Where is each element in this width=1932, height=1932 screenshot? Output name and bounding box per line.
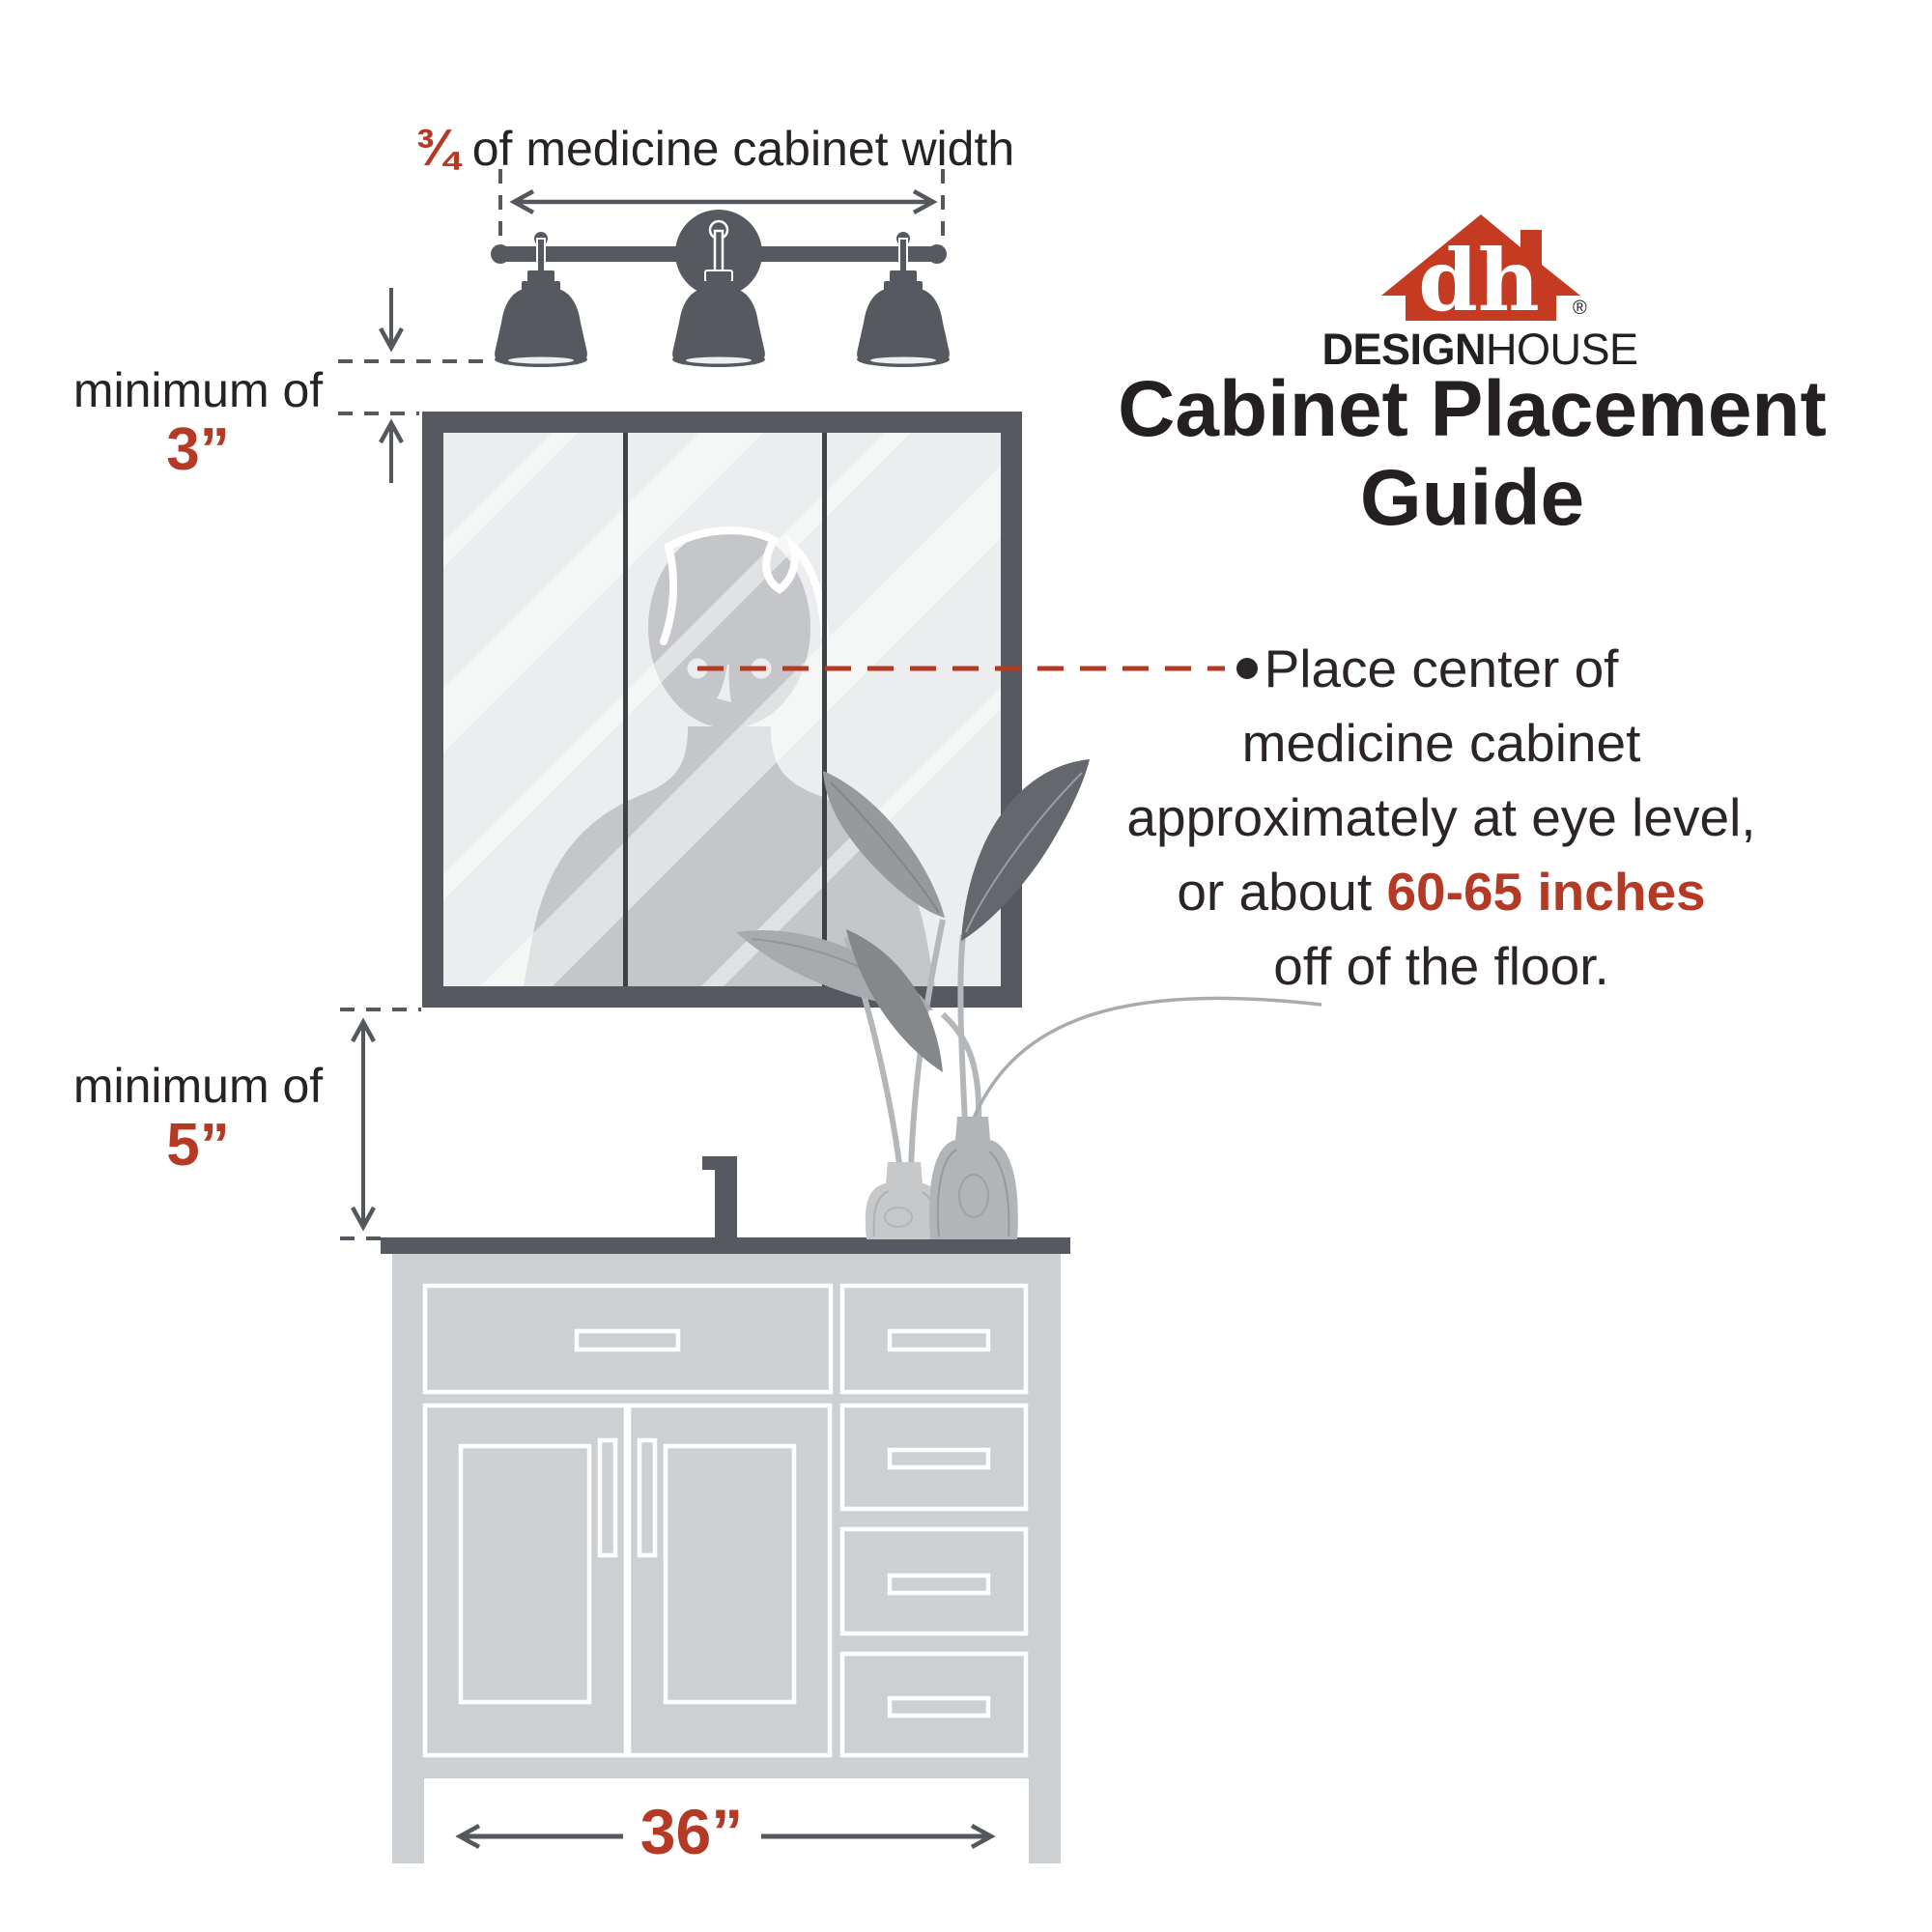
mirror-door-divider-left: [623, 433, 628, 986]
gap3-value: 3”: [48, 423, 348, 477]
vanity-cabinet: [381, 1156, 1070, 1863]
mirror-door-divider-right: [822, 433, 827, 986]
placement-note: Place center of medicine cabinet approxi…: [1113, 632, 1770, 1004]
cabinet-placement-guide: ¾ of medicine cabinet width minimum of 3…: [0, 0, 1932, 1932]
vanity-light-icon: [491, 210, 950, 367]
gap5-dimension: [340, 1009, 421, 1238]
gap3-text: minimum of: [48, 363, 348, 417]
registered-mark: ®: [1573, 298, 1587, 320]
title-line1: Cabinet Placement: [1066, 365, 1878, 454]
note-line3: approximately at eye level,: [1113, 781, 1770, 855]
note-line2: medicine cabinet: [1113, 706, 1770, 781]
note-line4-prefix: or about: [1177, 862, 1386, 922]
title-line2: Guide: [1066, 454, 1878, 543]
note-line5: off of the floor.: [1113, 929, 1770, 1004]
medicine-cabinet: [422, 412, 1022, 1008]
cabinet-width-label: ¾ of medicine cabinet width: [377, 120, 1053, 177]
countertop: [381, 1237, 1070, 1254]
page-title: Cabinet Placement Guide: [1066, 365, 1878, 543]
vases: [866, 1117, 1018, 1239]
faucet: [702, 1156, 737, 1241]
gap5-label: minimum of 5”: [48, 1059, 348, 1173]
note-line4: or about 60-65 inches: [1113, 855, 1770, 929]
note-line1: Place center of: [1113, 632, 1770, 706]
gap5-value: 5”: [48, 1119, 348, 1173]
note-height-range: 60-65 inches: [1386, 862, 1705, 922]
gap3-label: minimum of 3”: [48, 363, 348, 477]
gap5-text: minimum of: [48, 1059, 348, 1113]
width-label-text: of medicine cabinet width: [459, 122, 1014, 176]
vanity-width-value: 36”: [614, 1797, 769, 1866]
vanity-leg-right: [1029, 1778, 1061, 1863]
designhouse-logo-icon: dh: [1379, 209, 1582, 325]
width-fraction: ¾: [415, 119, 459, 177]
vanity-leg-left: [392, 1778, 424, 1863]
logo-monogram: dh: [1418, 230, 1540, 325]
